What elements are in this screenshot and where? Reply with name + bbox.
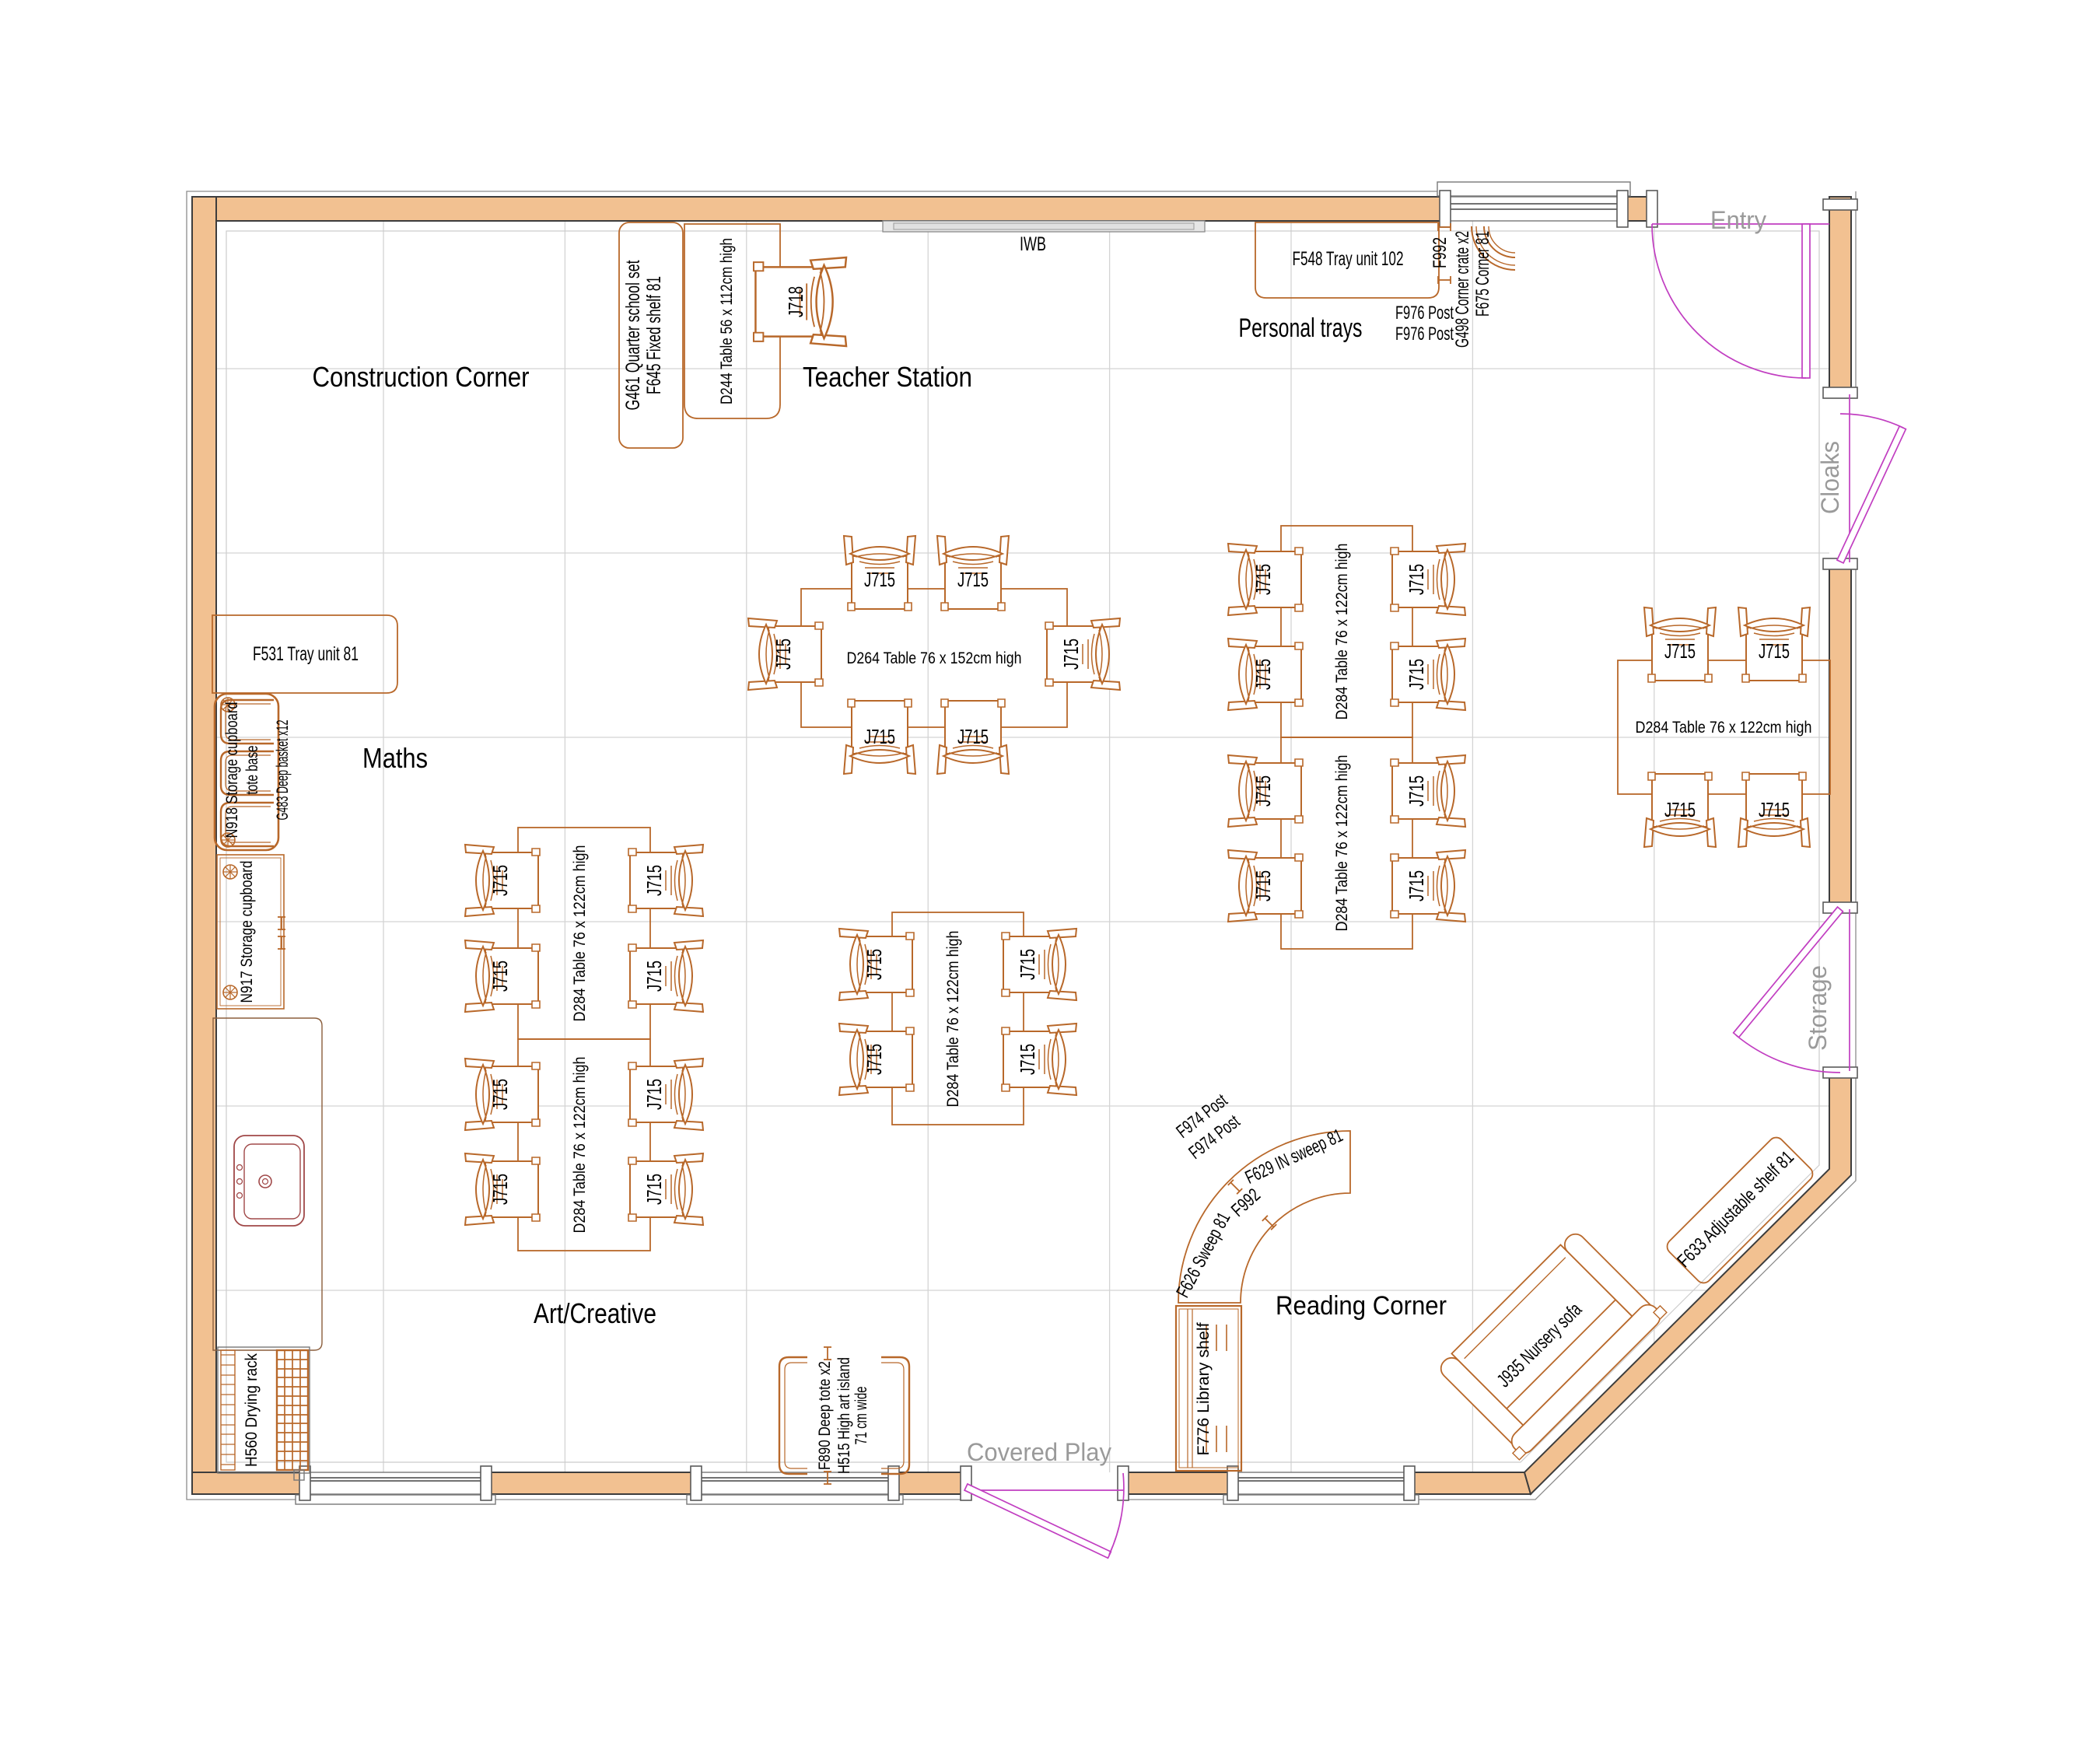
svg-text:J715: J715 (1059, 639, 1083, 670)
svg-text:J715: J715 (488, 961, 512, 992)
svg-text:D244 Table 56 x 112cm high: D244 Table 56 x 112cm high (718, 238, 736, 404)
svg-text:J715: J715 (1759, 798, 1790, 821)
svg-text:J715: J715 (1405, 775, 1428, 807)
svg-text:Personal trays: Personal trays (1239, 313, 1363, 343)
svg-text:J715: J715 (642, 865, 666, 896)
svg-text:J715: J715 (1405, 659, 1428, 690)
svg-text:Teacher Station: Teacher Station (803, 361, 972, 393)
svg-text:D264 Table 76 x 152cm high: D264 Table 76 x 152cm high (847, 649, 1022, 667)
svg-text:J715: J715 (864, 568, 895, 591)
svg-text:F675 Corner 81: F675 Corner 81 (1472, 231, 1493, 317)
svg-text:F976 Post: F976 Post (1395, 324, 1454, 345)
svg-text:H560 Drying rack: H560 Drying rack (243, 1353, 261, 1467)
svg-text:J715: J715 (488, 865, 512, 896)
svg-text:J715: J715 (642, 1079, 666, 1110)
svg-text:Art/Creative: Art/Creative (534, 1297, 656, 1329)
svg-text:Storage: Storage (1804, 965, 1832, 1051)
svg-text:J715: J715 (772, 639, 795, 670)
svg-text:F548 Tray unit 102: F548 Tray unit 102 (1293, 248, 1404, 270)
svg-text:J715: J715 (957, 568, 989, 591)
svg-text:J718: J718 (784, 286, 807, 317)
svg-text:D284 Table 76 x 122cm high: D284 Table 76 x 122cm high (944, 931, 962, 1108)
svg-text:G461 Quarter school set: G461 Quarter school set (622, 260, 644, 410)
svg-text:J715: J715 (864, 725, 895, 748)
svg-text:tote base: tote base (243, 746, 261, 795)
svg-text:N917 Storage cupboard: N917 Storage cupboard (238, 861, 256, 1003)
svg-text:D284 Table 76 x 122cm high: D284 Table 76 x 122cm high (571, 1057, 589, 1234)
svg-text:J715: J715 (863, 1044, 886, 1075)
svg-text:J715: J715 (642, 961, 666, 992)
svg-text:F776 Library shelf: F776 Library shelf (1195, 1322, 1213, 1455)
svg-text:J715: J715 (1405, 870, 1428, 901)
svg-text:H515 High art island: H515 High art island (835, 1357, 853, 1474)
svg-text:Cloaks: Cloaks (1816, 441, 1844, 514)
svg-text:F531 Tray unit 81: F531 Tray unit 81 (253, 643, 359, 665)
svg-text:Maths: Maths (362, 742, 428, 774)
svg-text:G483 Deep basket x12: G483 Deep basket x12 (274, 720, 292, 821)
svg-text:J715: J715 (863, 949, 886, 980)
svg-text:Entry: Entry (1710, 206, 1766, 234)
svg-text:Construction Corner: Construction Corner (313, 361, 530, 393)
svg-text:Reading Corner: Reading Corner (1276, 1291, 1447, 1321)
svg-text:J715: J715 (1405, 564, 1428, 595)
svg-text:F992: F992 (1430, 237, 1451, 268)
svg-text:D284 Table 76 x 122cm high: D284 Table 76 x 122cm high (1333, 755, 1351, 932)
svg-text:71 cm wide: 71 cm wide (852, 1387, 870, 1445)
svg-text:D284 Table 76 x 122cm high: D284 Table 76 x 122cm high (571, 845, 589, 1022)
svg-text:IWB: IWB (1020, 233, 1046, 255)
svg-text:N918 Storage cupboard: N918 Storage cupboard (223, 702, 241, 838)
svg-text:J715: J715 (488, 1079, 512, 1110)
svg-text:F890 Deep tote x2: F890 Deep tote x2 (816, 1361, 834, 1470)
svg-text:J715: J715 (1251, 870, 1275, 901)
svg-text:D284 Table 76 x 122cm high: D284 Table 76 x 122cm high (1333, 544, 1351, 720)
svg-text:J715: J715 (1251, 564, 1275, 595)
svg-text:J715: J715 (1759, 639, 1790, 663)
svg-text:J715: J715 (1016, 1044, 1039, 1075)
svg-text:J715: J715 (957, 725, 989, 748)
svg-text:D284 Table 76 x 122cm high: D284 Table 76 x 122cm high (1636, 719, 1812, 737)
svg-text:J715: J715 (1251, 775, 1275, 807)
svg-text:F645 Fixed shelf 81: F645 Fixed shelf 81 (643, 276, 665, 394)
svg-text:F976 Post: F976 Post (1395, 303, 1454, 324)
svg-text:J715: J715 (642, 1174, 666, 1205)
svg-text:G498 Corner crate x2: G498 Corner crate x2 (1452, 231, 1473, 348)
svg-text:J715: J715 (1016, 949, 1039, 980)
svg-text:J715: J715 (1664, 798, 1696, 821)
svg-text:J715: J715 (1251, 659, 1275, 690)
svg-text:Covered Play: Covered Play (967, 1438, 1111, 1466)
svg-text:J715: J715 (1664, 639, 1696, 663)
svg-text:J715: J715 (488, 1174, 512, 1205)
